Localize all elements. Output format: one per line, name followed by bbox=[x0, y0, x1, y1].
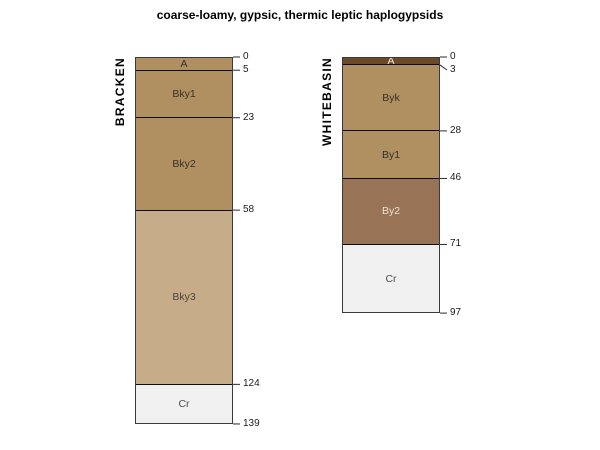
depth-tick-label: 58 bbox=[243, 205, 254, 215]
horizon-label: Byk bbox=[382, 93, 400, 103]
horizon-boundary-line bbox=[342, 244, 440, 245]
horizon-boundary-line bbox=[342, 178, 440, 179]
depth-tick-line bbox=[440, 65, 447, 70]
depth-tick-lines-layer bbox=[0, 0, 600, 450]
horizon-label: A bbox=[180, 59, 187, 69]
depth-tick-label: 139 bbox=[243, 419, 260, 429]
horizon-cr: Cr bbox=[135, 384, 233, 424]
profile-name-label: WHITEBASIN bbox=[320, 57, 334, 146]
horizon-bky3: Bky3 bbox=[135, 210, 233, 384]
depth-tick-label: 28 bbox=[450, 126, 461, 136]
depth-tick-label: 46 bbox=[450, 173, 461, 183]
horizon-label: By2 bbox=[382, 206, 400, 216]
figure-title: coarse-loamy, gypsic, thermic leptic hap… bbox=[0, 8, 600, 22]
horizon-a: A bbox=[135, 57, 233, 70]
horizon-by2: By2 bbox=[342, 178, 440, 244]
depth-tick-label: 97 bbox=[450, 308, 461, 318]
horizon-by1: By1 bbox=[342, 131, 440, 179]
profile-name-label: BRACKEN bbox=[113, 57, 127, 126]
depth-tick-label: 3 bbox=[450, 65, 456, 75]
horizon-cr: Cr bbox=[342, 244, 440, 313]
horizon-boundary-line bbox=[342, 64, 440, 65]
horizon-bky1: Bky1 bbox=[135, 70, 233, 118]
soil-profile-figure: coarse-loamy, gypsic, thermic leptic hap… bbox=[0, 0, 600, 450]
horizon-boundary-line bbox=[135, 70, 233, 71]
horizon-byk: Byk bbox=[342, 65, 440, 131]
horizon-label: Cr bbox=[385, 274, 396, 284]
depth-tick-label: 0 bbox=[450, 52, 456, 62]
depth-tick-label: 0 bbox=[243, 52, 249, 62]
depth-tick-label: 23 bbox=[243, 113, 254, 123]
horizon-boundary-line bbox=[135, 210, 233, 211]
depth-tick-label: 124 bbox=[243, 379, 260, 389]
horizon-label: Bky2 bbox=[172, 159, 195, 169]
depth-tick-label: 5 bbox=[243, 65, 249, 75]
horizon-boundary-line bbox=[135, 117, 233, 118]
depth-tick-label: 71 bbox=[450, 239, 461, 249]
horizon-label: Bky3 bbox=[172, 292, 195, 302]
horizon-boundary-line bbox=[342, 130, 440, 131]
horizon-label: By1 bbox=[382, 150, 400, 160]
horizon-label: Cr bbox=[178, 399, 189, 409]
horizon-label: Bky1 bbox=[172, 89, 195, 99]
horizon-bky2: Bky2 bbox=[135, 118, 233, 210]
horizon-boundary-line bbox=[135, 384, 233, 385]
